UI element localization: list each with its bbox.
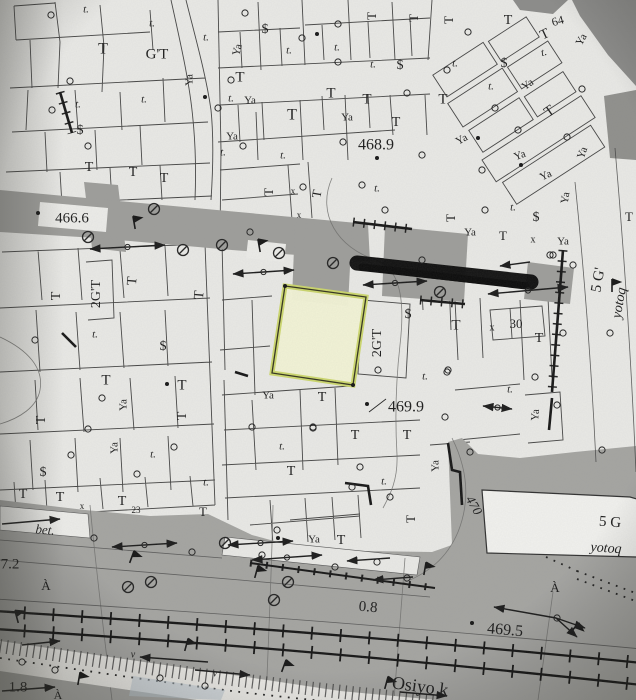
map-canvas: t.t.TG'Tt.Yat.t.$t.$Yat.t.t.$TYaTTTYaTYa… [0,0,636,700]
edge-shadow-overlay [0,0,636,700]
scanned-map-photo: t.t.TG'Tt.Yat.t.$t.$Yat.t.t.$TYaTTTYaTYa… [0,0,636,700]
